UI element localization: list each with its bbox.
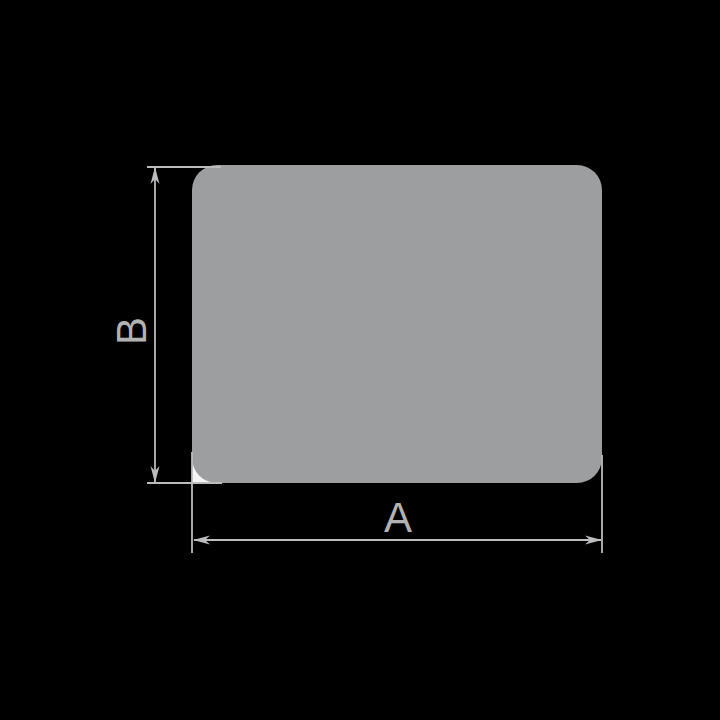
profile-dimension-diagram: A B [0, 0, 720, 720]
profile-shape [192, 165, 602, 483]
diagram-canvas: A B [0, 0, 720, 720]
width-label: A [384, 494, 412, 541]
height-label: B [108, 317, 155, 345]
